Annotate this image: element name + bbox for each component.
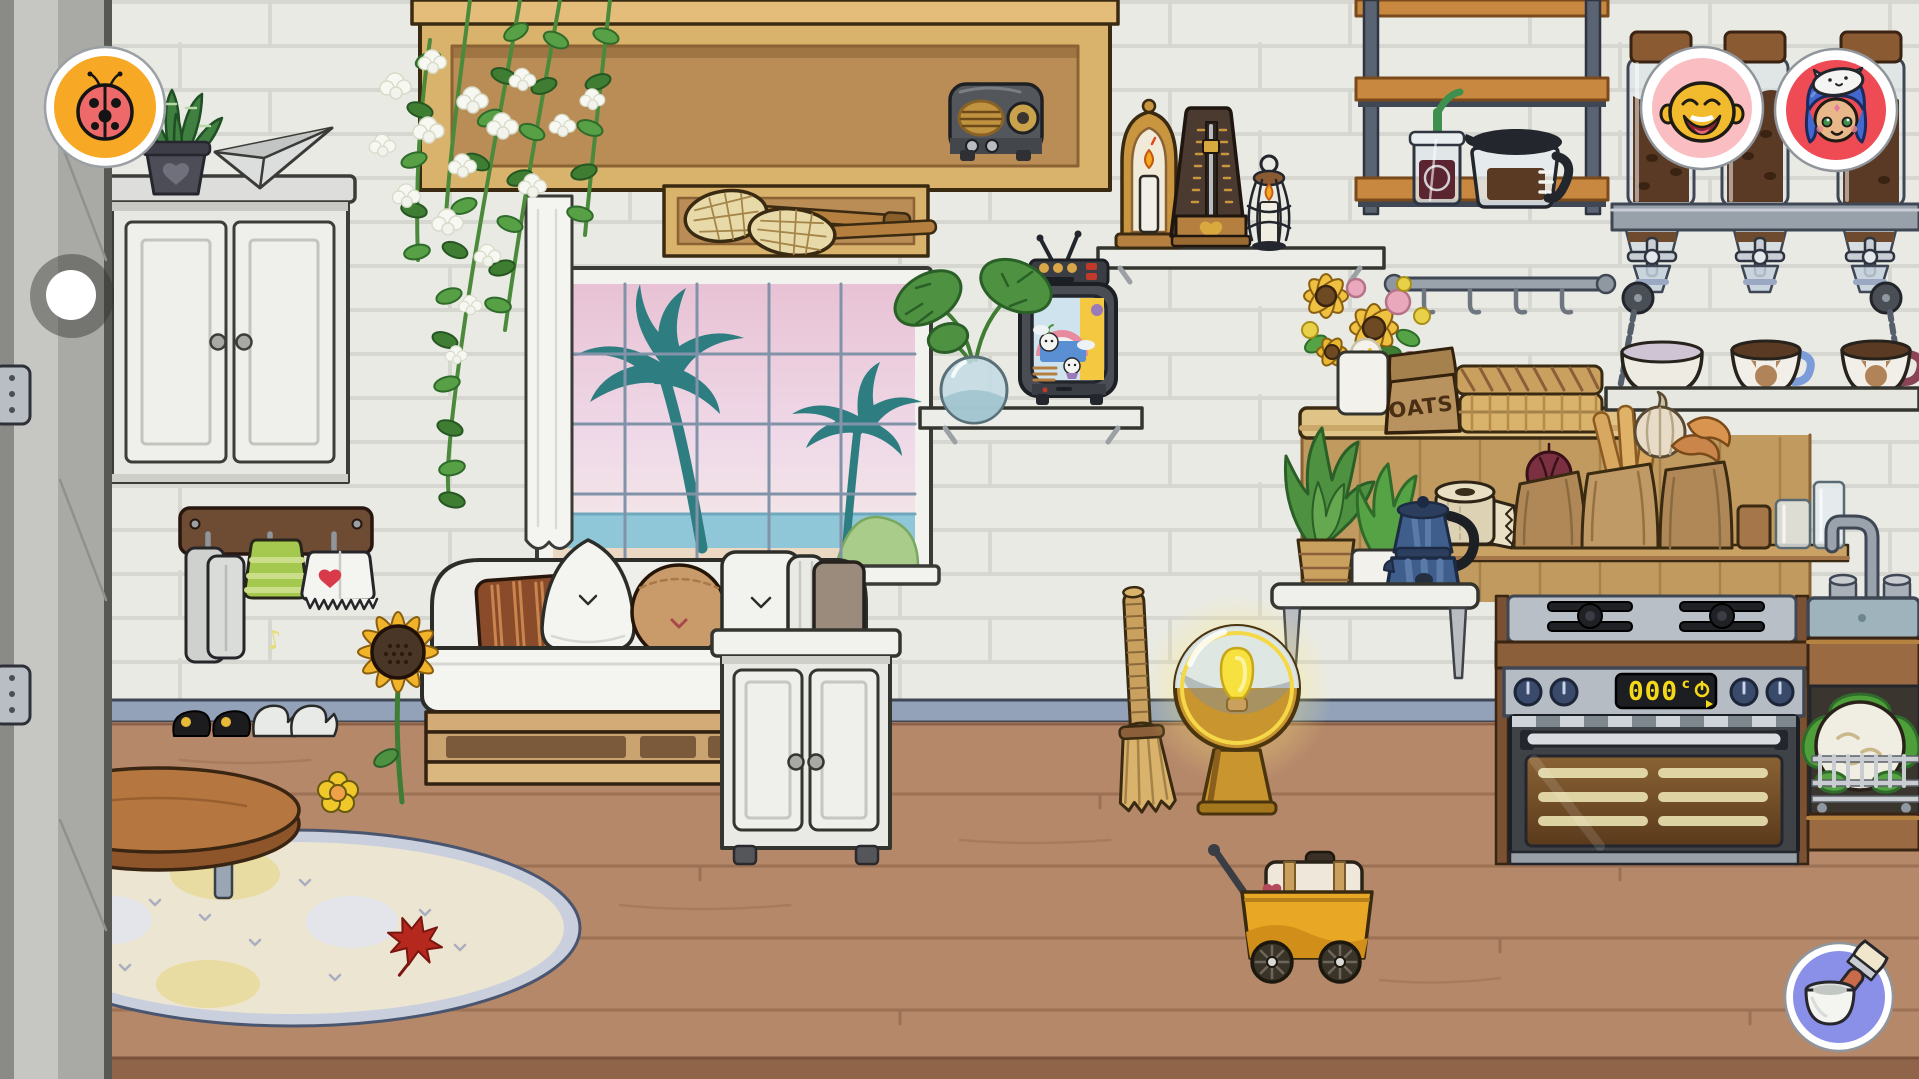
window-palm-view[interactable] — [529, 268, 939, 584]
vintage-radio[interactable] — [950, 84, 1042, 161]
oven-checker — [1512, 716, 1796, 727]
dishwasher[interactable] — [1797, 686, 1919, 850]
bowl[interactable] — [1622, 342, 1702, 394]
oven-display[interactable]: 000 c — [1616, 674, 1716, 708]
woven-tray[interactable] — [1456, 366, 1602, 432]
white-cabinet[interactable] — [712, 630, 900, 864]
oats-bag[interactable]: OATS — [1386, 348, 1460, 433]
oven-knob[interactable] — [1551, 679, 1577, 705]
room-scene: ♪ — [0, 0, 1919, 1079]
wagon-wheel-icon — [1320, 942, 1360, 982]
character-button-blue-hair[interactable] — [1775, 49, 1897, 171]
bean-dispensers[interactable] — [1626, 230, 1896, 292]
nav-handle[interactable] — [30, 254, 114, 338]
oven-display-unit: c — [1682, 677, 1690, 692]
racket-shelf[interactable] — [664, 186, 936, 260]
game-stage: ♪ — [0, 0, 1919, 1079]
green-striped-mitt[interactable] — [245, 540, 307, 598]
white-heart-mitt[interactable] — [302, 552, 377, 609]
drag-handle-dot-icon — [46, 270, 96, 320]
oven[interactable]: 000 c — [1504, 668, 1804, 864]
oven-knob[interactable] — [1515, 679, 1541, 705]
wall-cabinet[interactable] — [103, 176, 355, 482]
character-button-yellow[interactable] — [1641, 47, 1763, 169]
coffee-carafe[interactable] — [1465, 129, 1569, 207]
oven-knob[interactable] — [1731, 679, 1757, 705]
pet-button[interactable] — [45, 47, 165, 167]
door-hinge-icon — [0, 666, 30, 724]
oven-knob[interactable] — [1767, 679, 1793, 705]
wagon-wheel-icon — [1252, 942, 1292, 982]
grey-towel[interactable] — [186, 548, 244, 662]
curtain[interactable] — [526, 196, 572, 549]
oven-display-value: 000 — [1628, 677, 1678, 707]
door-hinge-icon — [0, 366, 30, 424]
jar-rail — [1612, 204, 1919, 230]
